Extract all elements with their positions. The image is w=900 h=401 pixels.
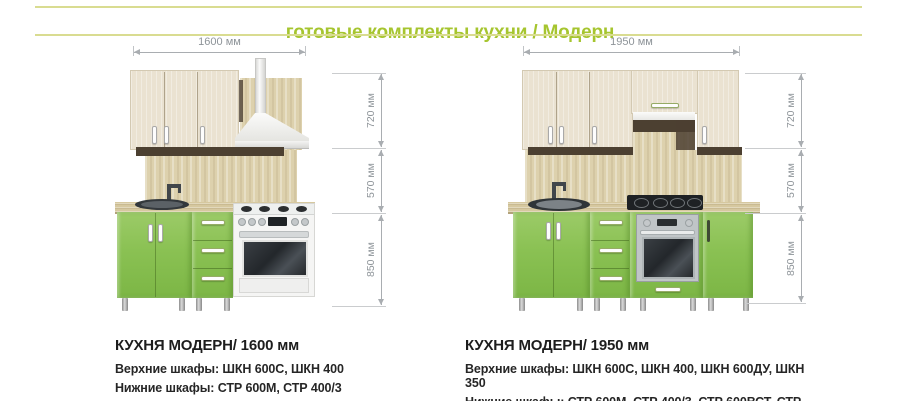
oven-window [642,237,695,279]
width-dimension: 1950 мм [523,39,740,56]
height-label-upper: 720 мм [785,74,797,147]
door-handle [559,126,564,144]
height-dimension-base: 850 мм [801,215,802,302]
control-knob [643,219,651,227]
built-in-oven [636,214,699,282]
door-handle [546,222,551,240]
upper-cabinet-shkn350 [697,70,739,150]
kitchen-name: КУХНЯ МОДЕРН/ 1950 мм [465,337,825,354]
height-label-base: 850 мм [785,215,797,302]
arrow-down-icon [798,296,804,302]
door-handle [548,126,553,144]
door-handle [651,103,679,108]
drawer-seam [591,268,629,269]
door-seam [556,72,557,148]
arrow-right-icon [733,49,739,55]
extension-line [745,303,806,304]
door-seam [553,213,554,297]
door-handle [592,126,597,144]
drawer-seam [591,240,629,241]
burner [687,198,702,208]
sink-basin [536,200,582,209]
arrow-up-icon [798,74,804,80]
cabinet-leg [594,298,600,311]
drawer-handle [599,220,623,225]
extension-line [745,213,806,214]
oven-handle [640,230,695,235]
cabinet-underside-shadow [528,147,633,155]
cabinet-leg [743,298,749,311]
height-dimension-upper: 720 мм [801,74,802,147]
burner [670,198,685,208]
height-dimension-apron: 570 мм [801,150,802,212]
arrow-down-icon [798,141,804,147]
oven-display [657,219,677,226]
dimension-line [524,52,739,53]
drawer-cabinet-str400-3 [590,212,630,298]
upper-cabinet-shkn600du [631,70,699,114]
upper-cabinets-shkn600s-shkn400 [522,70,633,150]
door-seam [589,72,590,148]
control-knob [685,219,693,227]
height-label-apron: 570 мм [785,150,797,212]
burner [634,198,649,208]
faucet-tip [563,182,566,191]
kitchen-diagram-1950: 1950 мм [0,0,900,401]
extension-line [745,148,806,149]
drawer-handle [599,276,623,281]
cabinet-leg [577,298,583,311]
base-cabinet-str600m [513,212,590,298]
drawer-handle [599,248,623,253]
cabinet-leg [708,298,714,311]
door-handle [556,222,561,240]
arrow-down-icon [798,206,804,212]
catalog-page: готовые комплекты кухни / Модерн 1600 мм [0,0,900,401]
door-handle [707,220,710,242]
lower-cabinets-list: Нижние шкафы: СТР 600М, СТР 400/3, СТР 6… [465,395,825,401]
arrow-up-icon [798,150,804,156]
burner [653,198,668,208]
kitchen-caption-1950: КУХНЯ МОДЕРН/ 1950 мм Верхние шкафы: ШКН… [465,337,825,401]
cabinet-leg [690,298,696,311]
drawer-handle [655,287,681,292]
gas-hob [627,195,703,210]
door-handle [702,126,707,144]
cabinet-leg [620,298,626,311]
width-label: 1950 мм [523,37,740,48]
arrow-left-icon [524,49,530,55]
cabinet-underside-shadow [697,147,742,155]
upper-cabinets-list: Верхние шкафы: ШКН 600С, ШКН 400, ШКН 60… [465,362,825,390]
cabinet-leg [640,298,646,311]
arrow-up-icon [798,215,804,221]
base-cabinet-str350 [703,212,753,298]
hood-side-shadow [676,120,695,150]
cabinet-leg [519,298,525,311]
